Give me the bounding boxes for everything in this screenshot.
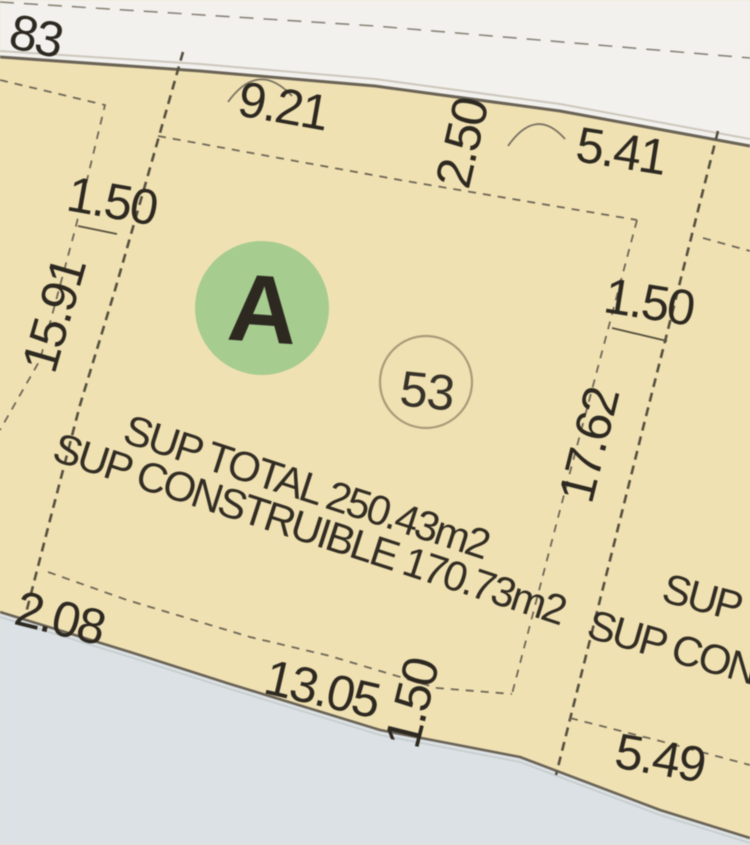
block-letter: A [225, 254, 302, 366]
cadastral-map: A 53 SUP TOTAL 250.43m2 SUP CONSTRUIBLE … [0, 0, 750, 845]
map-canvas: A 53 SUP TOTAL 250.43m2 SUP CONSTRUIBLE … [0, 0, 750, 845]
lot-number: 53 [397, 360, 456, 421]
